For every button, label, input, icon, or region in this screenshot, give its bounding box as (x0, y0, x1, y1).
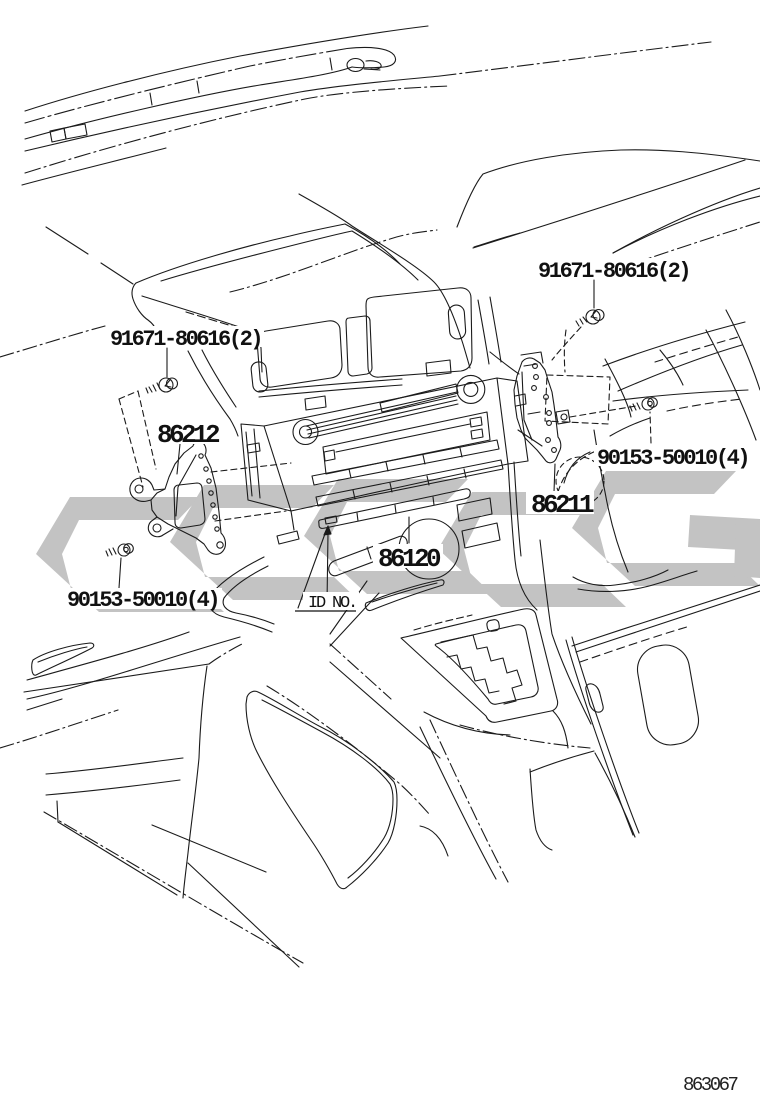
svg-text:91671-80616(2): 91671-80616(2) (538, 259, 689, 284)
svg-text:863067: 863067 (683, 1074, 738, 1096)
svg-text:91671-80616(2): 91671-80616(2) (110, 327, 261, 352)
svg-text:ID NO.: ID NO. (308, 594, 356, 613)
svg-text:90153-50010(4): 90153-50010(4) (597, 446, 748, 471)
svg-text:86211: 86211 (531, 490, 594, 520)
svg-text:90153-50010(4): 90153-50010(4) (67, 588, 218, 613)
svg-text:86120: 86120 (378, 544, 441, 574)
svg-text:86212: 86212 (157, 420, 220, 450)
